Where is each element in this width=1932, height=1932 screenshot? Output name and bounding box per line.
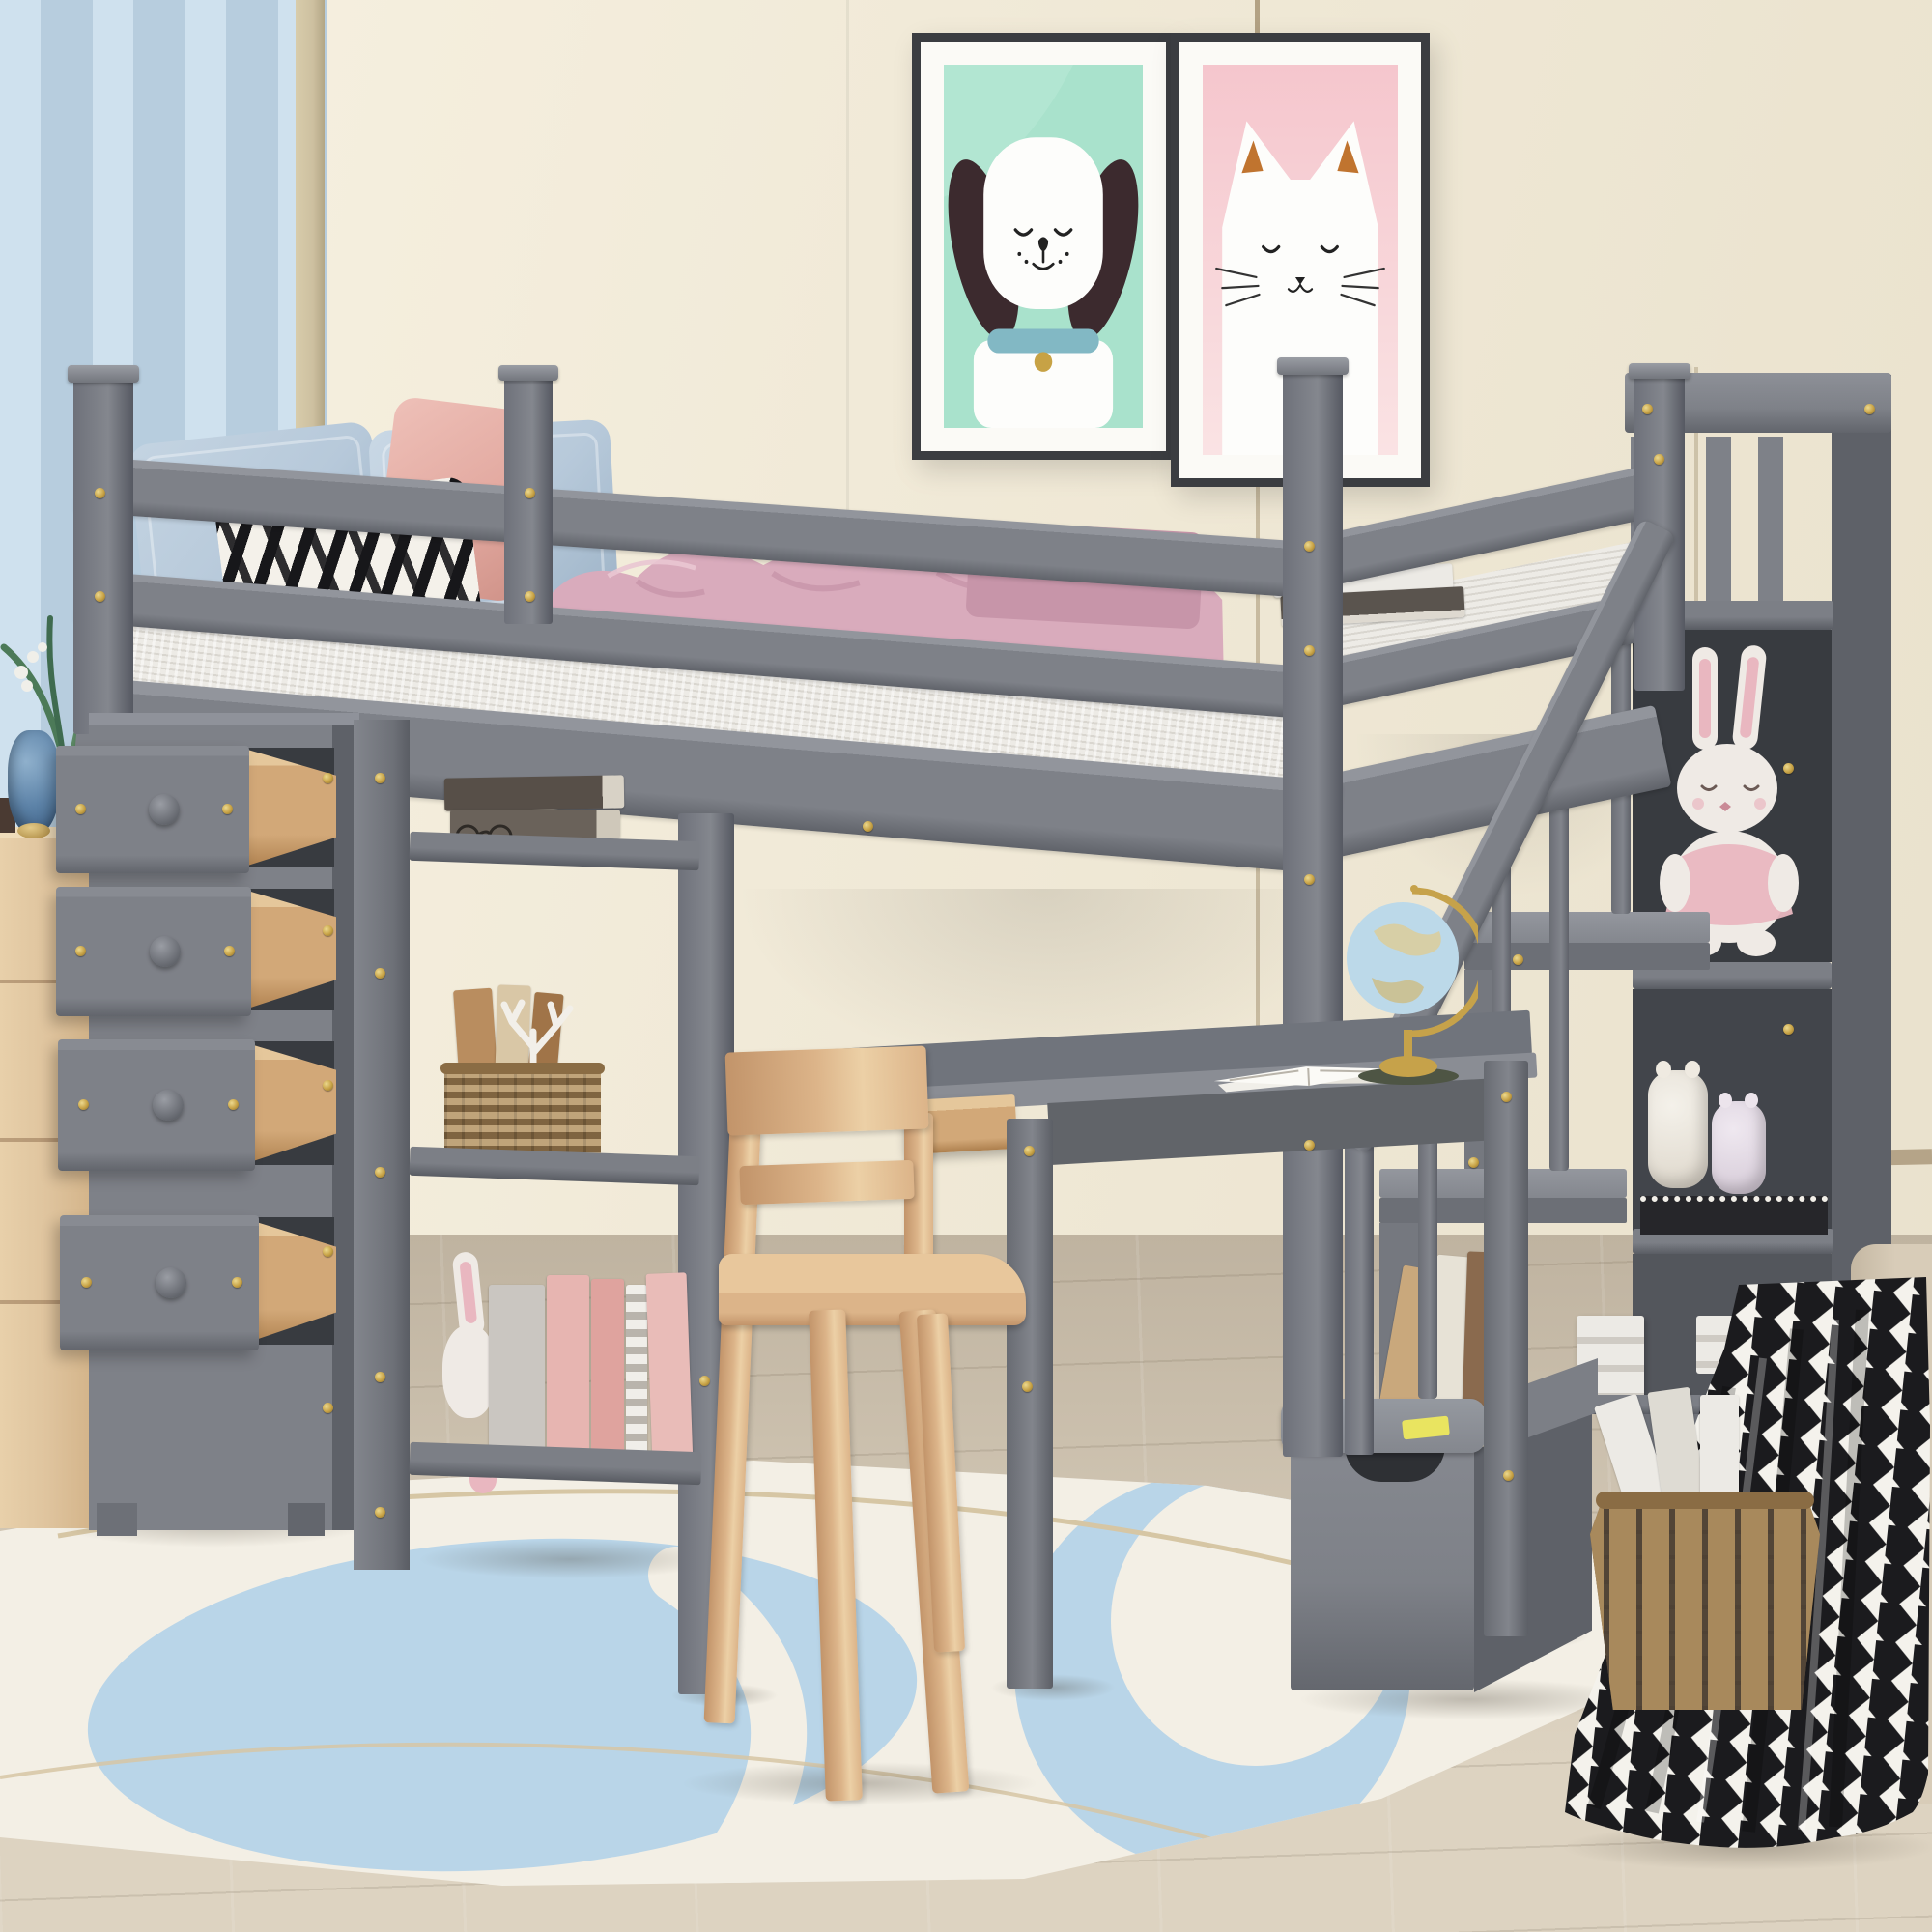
chair-seat [719, 1254, 1026, 1325]
bed-post-right-front [1283, 367, 1343, 1457]
bed-post-cap [1629, 363, 1690, 379]
storage-drawer [60, 1215, 259, 1350]
toy-ear [1656, 1061, 1671, 1078]
gold-screw [375, 968, 385, 979]
chair-back-slat [739, 1160, 914, 1205]
guardrail-center-post [504, 375, 553, 624]
rail-slat [1758, 437, 1783, 603]
gold-screw [1022, 1381, 1033, 1392]
gold-screw [232, 1277, 242, 1288]
gold-screw [699, 1376, 710, 1386]
gold-screw [323, 1403, 333, 1413]
gold-screw [95, 488, 105, 498]
wicker-shelf-basket [444, 1068, 601, 1159]
gold-screw [375, 1507, 385, 1518]
gold-screw [323, 925, 333, 936]
gold-screw [81, 1277, 92, 1288]
staircase-storage-drawer [1291, 1449, 1474, 1690]
gold-screw [75, 804, 86, 814]
shelf-board-top [410, 832, 700, 870]
rail-slat [1706, 437, 1731, 603]
gold-screw [95, 591, 105, 602]
toy-ear [1685, 1061, 1700, 1078]
bed-post-cap [1277, 357, 1349, 375]
drawer-knob [153, 1090, 184, 1121]
shelf-book [591, 1279, 624, 1463]
shelf-book [489, 1285, 545, 1461]
desk-globe [1339, 885, 1478, 1088]
bunny-ear-inner [459, 1262, 477, 1324]
basket-rim [440, 1063, 605, 1074]
vase-gold-foot [17, 823, 50, 838]
gold-screw [228, 1099, 239, 1110]
gold-screw [375, 773, 385, 783]
gold-screw [1468, 1157, 1479, 1168]
bedroom-scene [0, 0, 1932, 1932]
gold-screw [323, 1080, 333, 1091]
bookshelf-side-panel [354, 720, 410, 1570]
gold-screw [525, 591, 535, 602]
gold-screw [375, 1167, 385, 1178]
gold-screw [1783, 1024, 1794, 1035]
dog-poster-art [944, 65, 1143, 428]
gold-screw [1783, 763, 1794, 774]
toy-ear [1719, 1093, 1732, 1108]
gold-screw [222, 804, 233, 814]
shelf-book [547, 1275, 589, 1461]
gold-screw [1304, 541, 1315, 552]
gold-screw [525, 488, 535, 498]
tower-top-edge [89, 713, 359, 724]
blue-glass-vase [8, 730, 60, 835]
gold-screw [1304, 645, 1315, 656]
gold-screw [1513, 954, 1523, 965]
gold-screw [1304, 874, 1315, 885]
drawer-knob [149, 794, 180, 825]
shelf-book [646, 1272, 694, 1464]
floor-basket [1590, 1495, 1820, 1710]
desk-leg [1007, 1119, 1053, 1689]
storage-drawer [58, 1039, 255, 1171]
gold-screw [863, 821, 873, 832]
tower-foot [97, 1503, 137, 1536]
gold-screw [78, 1099, 89, 1110]
dog-poster [912, 33, 1175, 460]
plush-jar-toy [1712, 1101, 1766, 1194]
gold-screw [375, 1372, 385, 1382]
gold-screw [1501, 1092, 1512, 1102]
gold-screw [224, 946, 235, 956]
gold-screw [323, 1246, 333, 1257]
storage-drawer [56, 887, 251, 1016]
stacked-dark-books [444, 775, 625, 810]
gold-screw [323, 773, 333, 783]
gold-screw [1024, 1146, 1035, 1156]
gold-screw [75, 946, 86, 956]
storage-drawer [56, 746, 249, 873]
gold-screw [1654, 454, 1664, 465]
lace-trimmed-box [1640, 1196, 1828, 1235]
floor-basket-rim [1596, 1492, 1814, 1509]
handrail-bottom-post [1345, 1130, 1374, 1455]
bed-post-cap [68, 365, 139, 383]
tower-foot [288, 1503, 325, 1536]
shadow [985, 1673, 1121, 1702]
toy-ear [1745, 1093, 1758, 1108]
chair-back-slat [725, 1045, 929, 1135]
shelf-board-mid [410, 1147, 700, 1185]
drawer-knob [150, 936, 181, 967]
gold-screw [1642, 404, 1653, 414]
shelf-book [626, 1285, 647, 1464]
bed-post-cap [498, 365, 558, 381]
plush-jar-toy [1648, 1070, 1708, 1188]
gold-screw [1864, 404, 1875, 414]
drawer-knob [156, 1267, 186, 1298]
gold-screw [1304, 1140, 1315, 1151]
bed-post-left [73, 375, 133, 734]
